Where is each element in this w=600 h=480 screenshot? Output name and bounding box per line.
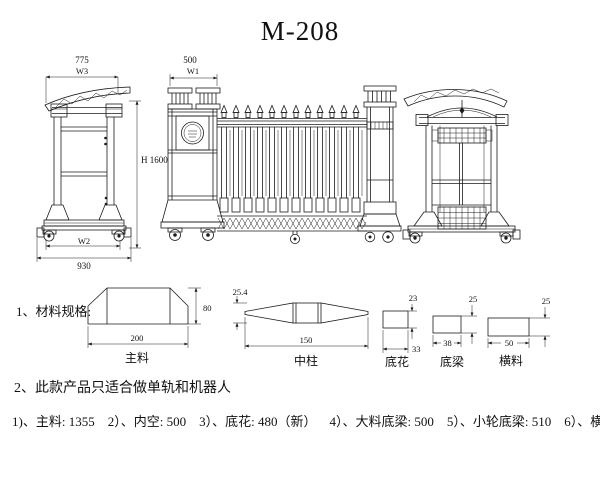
dim-height: H 1600 bbox=[129, 101, 168, 248]
dim-horizontal-height: 25 bbox=[542, 296, 551, 306]
label-horizontal-profile: 横料 bbox=[499, 354, 523, 368]
dim-flower-width: 33 bbox=[412, 344, 421, 354]
logo-emblem bbox=[182, 122, 204, 144]
dim-base-width: W2 930 bbox=[37, 236, 131, 271]
retractable-pickets bbox=[217, 106, 367, 244]
dim-head-width: 500 W1 bbox=[170, 55, 217, 86]
dim-w1: W1 bbox=[187, 66, 199, 76]
wheel-icon bbox=[170, 230, 214, 241]
dim-930: 930 bbox=[77, 261, 91, 271]
dim-centerpost-width: 150 bbox=[300, 335, 313, 345]
dim-main-width: 200 bbox=[131, 333, 144, 343]
dim-beam-height: 25 bbox=[469, 294, 478, 304]
dim-w2: W2 bbox=[78, 236, 90, 246]
label-bottom-flower: 底花 bbox=[385, 354, 409, 369]
dim-flower-height: 23 bbox=[409, 293, 418, 303]
spec-item-big-beam: 4）、大料底梁: 500 bbox=[329, 414, 433, 429]
gate-head bbox=[161, 88, 224, 241]
left-post-front-view bbox=[37, 87, 131, 241]
spec-item-inner: 2）、内空: 500 bbox=[108, 414, 186, 429]
dim-500: 500 bbox=[183, 55, 197, 65]
bottom-flower-section: 23 33 底花 bbox=[383, 293, 421, 369]
center-wheel-icon bbox=[290, 231, 299, 244]
dim-left-post-width: 775 W3 bbox=[46, 55, 118, 103]
dim-centerpost-height: 25.4 bbox=[233, 287, 249, 297]
materials-heading: 1、材料规格: bbox=[16, 301, 91, 320]
bottom-beam-section: 25 38 底梁 bbox=[433, 294, 477, 369]
technical-drawing: 775 W3 H 1600 W2 930 bbox=[0, 0, 600, 480]
label-center-post: 中柱 bbox=[294, 353, 318, 368]
wheel-icon bbox=[410, 233, 511, 243]
dim-775: 775 bbox=[75, 55, 89, 65]
spec-item-flower: 3）、底花: 480（新） bbox=[199, 414, 316, 429]
label-bottom-beam: 底梁 bbox=[440, 354, 464, 369]
dim-h1600: H 1600 bbox=[141, 155, 168, 165]
center-post-section: 25.4 150 中柱 bbox=[233, 287, 368, 368]
product-note: 2、此款产品只适合做单轨和机器人 bbox=[14, 377, 231, 397]
dim-main-height: 80 bbox=[203, 303, 212, 313]
right-post-view bbox=[403, 89, 520, 243]
horizontal-profile-section: 25 50 横料 bbox=[488, 296, 550, 368]
wheel-icon bbox=[365, 232, 393, 243]
dim-beam-width: 38 bbox=[443, 338, 452, 348]
spec-item-horizontal: 6）、横料: 482 bbox=[564, 414, 600, 429]
tail-post bbox=[358, 86, 401, 242]
spec-values-line: 1)、主料: 13552）、内空: 5003）、底花: 480（新）4）、大料底… bbox=[12, 411, 600, 430]
dim-w3: W3 bbox=[76, 66, 88, 76]
spec-item-main: 1)、主料: 1355 bbox=[12, 414, 95, 429]
main-profile-section: 80 200 主料 bbox=[88, 288, 212, 365]
label-main-profile: 主料 bbox=[125, 351, 149, 365]
spec-item-wheel-beam: 5）、小轮底梁: 510 bbox=[447, 414, 551, 429]
dim-horizontal-width: 50 bbox=[505, 338, 514, 348]
